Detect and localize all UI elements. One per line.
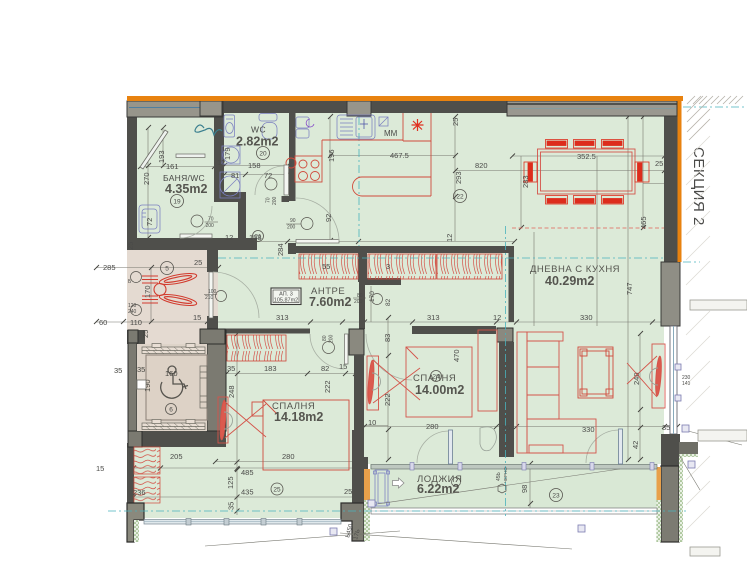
- svg-text:313: 313: [276, 313, 289, 322]
- svg-text:4.35m2: 4.35m2: [165, 182, 207, 196]
- svg-text:10: 10: [368, 418, 376, 427]
- svg-text:105.87m2: 105.87m2: [274, 298, 298, 304]
- svg-text:40.29m2: 40.29m2: [545, 274, 594, 288]
- svg-text:222: 222: [323, 380, 332, 393]
- svg-text:12: 12: [493, 313, 501, 322]
- svg-text:467.5: 467.5: [390, 151, 409, 160]
- svg-text:200: 200: [206, 223, 215, 229]
- svg-text:285: 285: [103, 263, 116, 272]
- svg-text:284: 284: [276, 243, 285, 256]
- svg-text:82: 82: [321, 364, 329, 373]
- svg-text:125: 125: [226, 476, 235, 489]
- svg-text:193: 193: [157, 150, 166, 163]
- svg-text:280: 280: [426, 422, 439, 431]
- svg-text:293: 293: [454, 171, 463, 184]
- svg-text:35: 35: [662, 423, 670, 432]
- svg-text:158: 158: [248, 161, 261, 170]
- svg-text:3: 3: [386, 262, 390, 271]
- svg-text:24: 24: [432, 374, 440, 381]
- svg-text:270: 270: [142, 172, 151, 185]
- svg-text:747: 747: [625, 282, 634, 295]
- svg-text:83: 83: [383, 334, 392, 342]
- svg-text:6.22m2: 6.22m2: [417, 482, 459, 496]
- svg-text:6: 6: [169, 407, 173, 414]
- svg-text:35: 35: [502, 423, 510, 432]
- svg-text:5: 5: [165, 266, 169, 273]
- svg-text:92: 92: [324, 214, 333, 222]
- svg-text:21: 21: [254, 234, 262, 241]
- svg-text:23: 23: [552, 493, 560, 500]
- svg-text:ММ: ММ: [384, 129, 398, 138]
- svg-text:СЕКЦИЯ 2: СЕКЦИЯ 2: [690, 147, 707, 226]
- svg-text:25: 25: [344, 487, 352, 496]
- svg-text:19: 19: [173, 199, 181, 206]
- svg-text:60: 60: [99, 318, 107, 327]
- svg-text:240: 240: [632, 372, 641, 385]
- svg-text:14.00m2: 14.00m2: [415, 383, 464, 397]
- svg-text:22: 22: [456, 194, 464, 201]
- svg-text:55: 55: [322, 262, 330, 271]
- svg-text:25: 25: [126, 242, 135, 250]
- svg-text:35: 35: [227, 502, 236, 510]
- svg-text:200: 200: [354, 299, 363, 305]
- svg-text:98: 98: [520, 485, 529, 493]
- svg-text:196: 196: [327, 149, 336, 162]
- svg-text:35: 35: [227, 364, 235, 373]
- svg-text:12: 12: [217, 158, 225, 167]
- svg-text:161: 161: [166, 162, 179, 171]
- svg-text:183: 183: [264, 364, 277, 373]
- svg-text:820: 820: [475, 161, 488, 170]
- svg-text:470: 470: [452, 349, 461, 362]
- svg-text:35: 35: [114, 366, 122, 375]
- svg-text:81: 81: [231, 171, 239, 180]
- svg-text:2.82m2: 2.82m2: [236, 135, 278, 149]
- svg-text:435: 435: [241, 488, 254, 497]
- svg-text:7.60m2: 7.60m2: [309, 295, 351, 309]
- svg-text:200: 200: [272, 196, 278, 205]
- svg-text:25: 25: [141, 330, 150, 338]
- svg-text:330: 330: [582, 425, 595, 434]
- svg-text:110: 110: [130, 318, 142, 327]
- svg-text:330: 330: [580, 313, 593, 322]
- svg-text:25: 25: [451, 118, 460, 126]
- svg-text:20: 20: [259, 151, 267, 158]
- svg-text:80: 80: [322, 335, 328, 341]
- svg-text:25: 25: [273, 487, 281, 494]
- svg-text:WC: WC: [251, 125, 266, 135]
- svg-text:465: 465: [639, 216, 648, 229]
- svg-text:42: 42: [631, 441, 640, 449]
- svg-text:210: 210: [205, 295, 214, 301]
- svg-text:12: 12: [445, 234, 454, 242]
- svg-text:205: 205: [170, 452, 183, 461]
- svg-text:485: 485: [241, 468, 254, 477]
- svg-text:35: 35: [137, 365, 145, 374]
- svg-text:82: 82: [385, 298, 392, 306]
- svg-text:222: 222: [383, 393, 392, 406]
- svg-text:15: 15: [96, 464, 104, 473]
- svg-text:313: 313: [427, 313, 440, 322]
- svg-text:236: 236: [133, 488, 146, 497]
- svg-text:25: 25: [194, 258, 202, 267]
- svg-text:170: 170: [143, 285, 152, 298]
- svg-text:280: 280: [282, 452, 295, 461]
- svg-text:248: 248: [227, 385, 236, 398]
- svg-text:160: 160: [165, 369, 178, 378]
- svg-text:200: 200: [287, 225, 296, 231]
- svg-text:15: 15: [193, 313, 201, 322]
- svg-text:45Ь: 45Ь: [496, 471, 502, 481]
- svg-text:72: 72: [145, 218, 154, 226]
- svg-text:25: 25: [655, 159, 663, 168]
- svg-text:14.18m2: 14.18m2: [274, 410, 323, 424]
- svg-text:90: 90: [290, 218, 296, 224]
- svg-text:ЧЕРНО: ЧЕРНО: [503, 467, 508, 483]
- svg-text:12: 12: [225, 233, 233, 242]
- svg-text:70: 70: [208, 217, 214, 223]
- svg-text:15: 15: [339, 362, 347, 371]
- svg-text:283: 283: [521, 175, 530, 188]
- svg-text:352.5: 352.5: [577, 152, 596, 161]
- svg-text:70: 70: [266, 197, 272, 203]
